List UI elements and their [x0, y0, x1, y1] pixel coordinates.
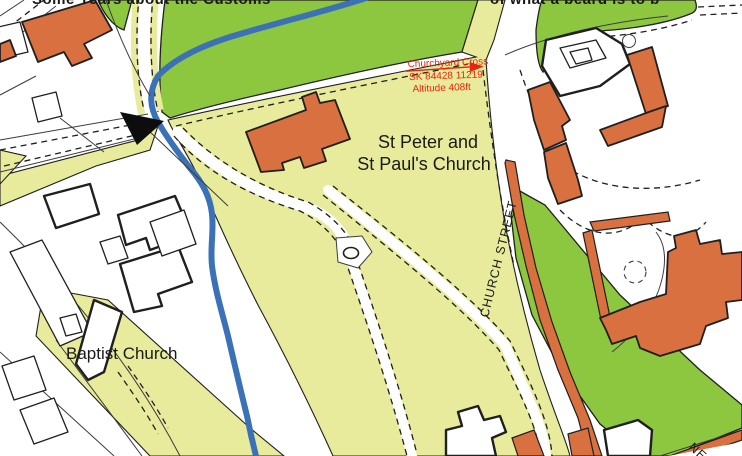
building-bottom-left-2	[20, 398, 68, 444]
court-south-east-range	[600, 230, 742, 356]
building-bottom-left-1	[2, 356, 46, 400]
right-west-arm-lower	[544, 143, 582, 204]
building-top-left-orange	[22, 0, 112, 66]
annotation-altitude: Altitude 408ft	[412, 82, 471, 95]
churchyard-cross-base	[344, 248, 359, 259]
court-north-wall	[590, 212, 670, 231]
street-map-image: St Peter and St Paul's Church Baptist Ch…	[0, 0, 742, 456]
corner-dash-row-2	[700, 13, 742, 15]
building-thick-lower	[120, 246, 192, 312]
building-thick-upper	[44, 184, 99, 228]
cut-off-text-top-left: Some Years about the Customs	[32, 0, 271, 8]
baptist-church-label: Baptist Church	[66, 344, 178, 363]
right-range-north	[627, 47, 668, 114]
church-label-line2: St Paul's Church	[357, 154, 491, 174]
top-footpath	[137, 0, 158, 112]
right-range-south	[600, 106, 666, 146]
church-label-line1: St Peter and	[378, 132, 478, 152]
building-small-square-top	[32, 92, 62, 122]
corner-dash-row-1	[698, 5, 742, 7]
courtyard-dashed-circle	[624, 261, 646, 283]
round-feature-top-right	[623, 35, 636, 48]
cut-off-text-top-right: of what a beard is to b	[490, 0, 660, 8]
